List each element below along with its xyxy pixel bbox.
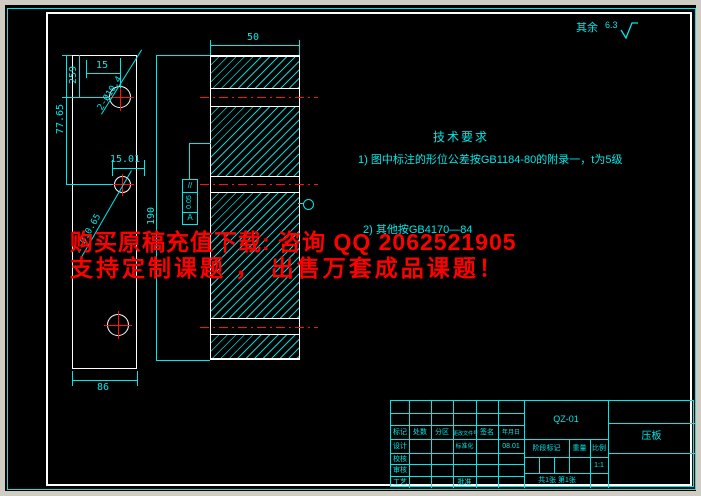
section-centerline-2 [200, 184, 318, 185]
dim-15: 15 [96, 61, 108, 71]
dim-7765: 77.65 [56, 97, 66, 141]
dim-1501: 15.01 [110, 155, 140, 165]
watermark-line-1: 购买原稿充值下载: 咨询 QQ 2062521905 [70, 229, 517, 255]
datum-circle-tick [298, 203, 304, 204]
dim-50-ext-l [210, 40, 211, 55]
tb-weight-label: 重量 [569, 445, 590, 453]
dim-86-line [72, 380, 138, 381]
ext-line-plate-top [62, 55, 72, 56]
fcf-leader-v [189, 143, 190, 179]
datum-circle-icon [303, 199, 314, 210]
dim-50-line [210, 45, 300, 46]
dim-1501-ext-r [144, 160, 145, 176]
cad-drawing-window: 15 259 77.65 15.01 86 2-Ø10.4 2-Ø10.65 5… [0, 0, 701, 496]
tb-col-date: 年月日 [498, 429, 524, 437]
fcf-datum-label: A [183, 214, 197, 222]
tb-col-count: 处数 [409, 429, 431, 437]
roughness-prefix: 其余 [576, 21, 598, 35]
dim-86-ext-l [72, 371, 73, 386]
centerline-cross-bot-v [118, 311, 119, 339]
dim-50: 50 [247, 33, 259, 43]
dim-86-ext-r [137, 371, 138, 386]
tb-row-check: 校核 [391, 456, 409, 464]
tb-col-sign: 签名 [476, 429, 498, 437]
tb-col-mark: 标记 [391, 429, 409, 437]
fcf-leader-h [189, 143, 211, 144]
dim-259: 259 [69, 58, 79, 92]
dim-50-ext-r [299, 40, 300, 55]
surface-roughness-icon [619, 21, 639, 39]
section-hatch-band-1 [211, 56, 299, 89]
tb-col-doc: 更改文件号 [453, 430, 476, 438]
tb-row-design: 设计 [391, 443, 409, 451]
tb-col-zone: 分区 [431, 429, 453, 437]
dim-86: 86 [97, 383, 109, 393]
roughness-value: 6.3 [605, 21, 618, 30]
dim-190-ext-top [156, 55, 210, 56]
section-hatch-band-4 [211, 334, 299, 359]
tb-standardization: 标准化 [453, 443, 476, 451]
dim-190-ext-bot [156, 360, 210, 361]
dim-259-line [79, 55, 80, 97]
section-centerline-1 [200, 97, 318, 98]
section-centerline-3 [200, 327, 318, 328]
tb-scale-label: 比例 [590, 445, 608, 453]
tb-scale-value: 1:1 [590, 462, 608, 470]
ext-line-hole-mid [66, 184, 113, 185]
dim-7765-line [66, 55, 67, 184]
fcf-tolerance: 0.05 [182, 189, 198, 215]
tech-req-item-1: 1) 图中标注的形位公差按GB1184-80的附录一，t为5级 [358, 151, 622, 167]
tb-design-date: 08.01 [498, 443, 524, 451]
tb-drawing-code: QZ-01 [524, 415, 608, 423]
tb-part-name: 压板 [608, 433, 695, 441]
tb-row-process: 工艺 [391, 479, 409, 487]
watermark-line-2: 支持定制课题 ， 出售万套成品课题！ [70, 255, 505, 281]
dim-1501-line [112, 168, 145, 169]
tb-row-review: 审核 [391, 467, 409, 475]
title-block: 标记 处数 分区 更改文件号 签名 年月日 设计 标准化 08.01 校核 审核… [390, 400, 694, 487]
tech-req-title: 技术要求 [433, 128, 489, 145]
section-hatch-band-2 [211, 106, 299, 177]
feature-control-frame: // 0.05 A [182, 179, 198, 225]
dim-15-ext-left [86, 60, 87, 78]
tb-sheet-info: 共1张 第1张 [524, 477, 590, 485]
tb-approval: 批准 [453, 479, 476, 487]
roughness-note: 其余 6.3 [576, 21, 639, 39]
tb-stage-mark: 阶段标记 [524, 445, 569, 453]
